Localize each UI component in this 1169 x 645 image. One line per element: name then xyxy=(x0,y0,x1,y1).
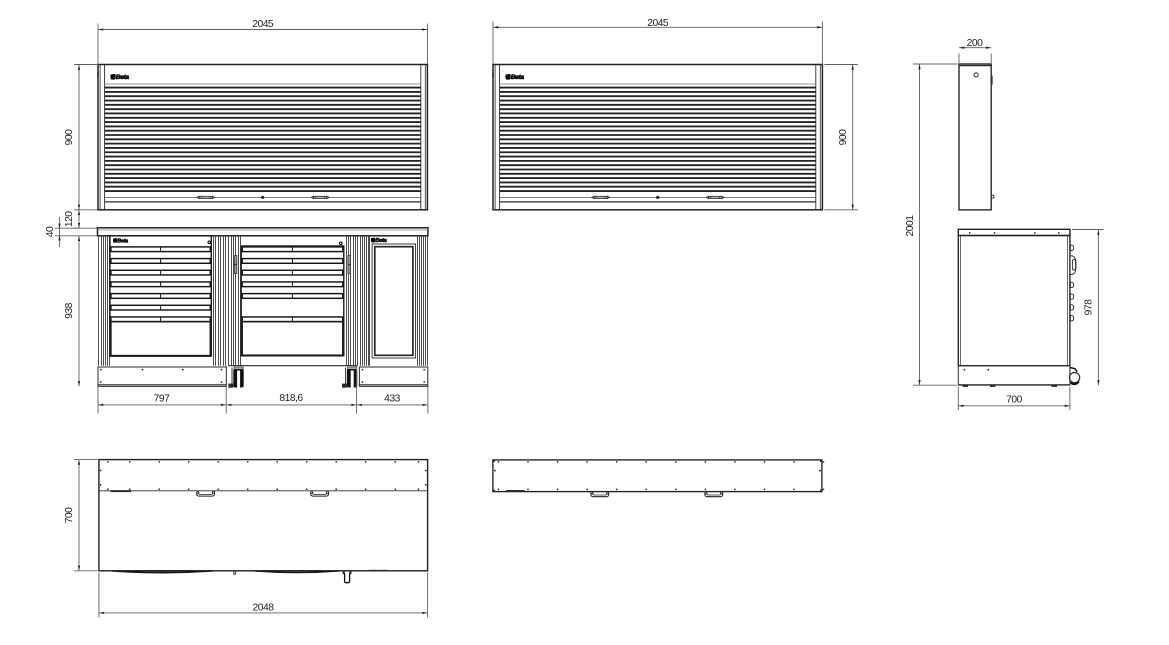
svg-text:797: 797 xyxy=(154,393,170,404)
svg-text:40: 40 xyxy=(45,226,56,237)
svg-text:2001: 2001 xyxy=(905,215,916,237)
svg-text:938: 938 xyxy=(64,302,75,318)
svg-text:700: 700 xyxy=(64,507,75,523)
svg-text:2045: 2045 xyxy=(647,18,669,29)
svg-text:Beta: Beta xyxy=(375,238,386,244)
svg-text:700: 700 xyxy=(1006,394,1022,405)
svg-text:818,6: 818,6 xyxy=(279,393,303,404)
svg-text:2045: 2045 xyxy=(252,19,274,30)
svg-text:2048: 2048 xyxy=(253,602,275,613)
svg-text:Beta: Beta xyxy=(117,238,128,244)
svg-text:Beta: Beta xyxy=(116,74,130,81)
svg-text:120: 120 xyxy=(64,211,75,227)
svg-text:900: 900 xyxy=(838,129,849,145)
svg-text:978: 978 xyxy=(1084,299,1095,315)
svg-text:200: 200 xyxy=(967,38,983,49)
svg-text:900: 900 xyxy=(64,129,75,145)
svg-text:433: 433 xyxy=(384,393,400,404)
svg-text:Beta: Beta xyxy=(511,74,525,81)
